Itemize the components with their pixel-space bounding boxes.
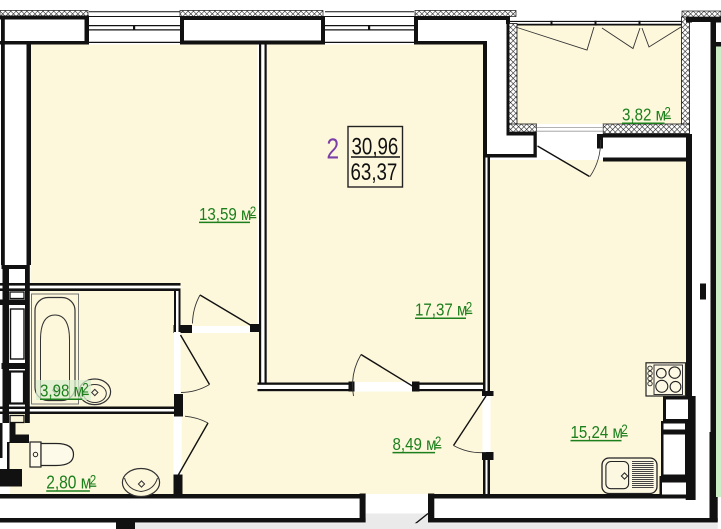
svg-text:30,96: 30,96 [352,133,399,160]
svg-text:2: 2 [466,300,472,315]
svg-text:2,80 м: 2,80 м [46,472,91,493]
svg-text:2: 2 [435,434,441,449]
svg-text:2: 2 [250,204,256,219]
svg-text:17,37 м: 17,37 м [415,299,467,320]
svg-text:63,37: 63,37 [351,159,398,186]
svg-text:2: 2 [90,472,96,487]
svg-text:2: 2 [621,422,627,437]
svg-text:8,49 м: 8,49 м [393,434,437,455]
svg-text:15,24 м: 15,24 м [571,422,623,443]
svg-text:2: 2 [327,132,340,165]
svg-text:2: 2 [665,105,671,120]
svg-text:3,98 м: 3,98 м [40,380,84,401]
svg-text:3,82 м: 3,82 м [622,104,666,125]
svg-text:2: 2 [82,381,88,396]
svg-text:13,59 м: 13,59 м [199,204,251,225]
